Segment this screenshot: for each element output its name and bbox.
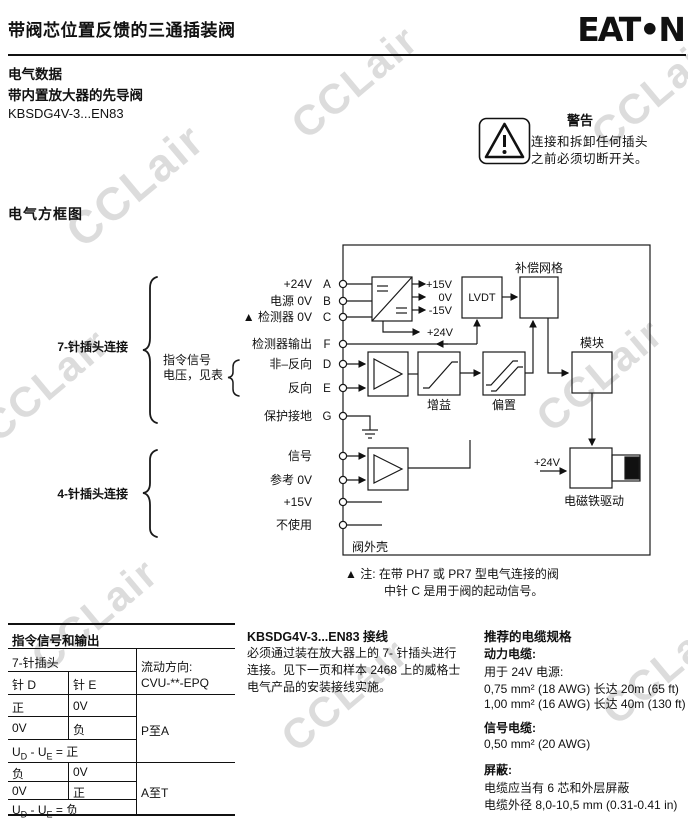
u-signal-negative: UD - UE = 负 [12,801,78,819]
lvdt-label: LVDT [468,292,496,304]
power-supply-block [372,277,412,321]
pin-g-letter: G [323,411,332,423]
pin-15v-label: +15V [284,495,312,509]
brace-4pin [143,450,157,537]
compensation-network-label: 补偿网格 [515,260,563,275]
supply-out-24v: +24V [427,327,454,339]
pin-g-label: 保护接地 [264,408,312,423]
signal-cable-line1: 0,50 mm² (20 AWG) [484,737,590,751]
pin-ref0v-label: 参考 0V [270,472,312,487]
pin-f-letter: F [323,339,330,351]
section-title: 电气方框图 [8,204,83,224]
pin-e-label: 反向 [288,380,312,395]
shield-title: 屏蔽: [484,761,512,778]
solenoid-drive [570,448,640,488]
solenoid-supply-label: +24V [534,457,561,469]
pin-unused-label: 不使用 [276,517,312,532]
diagram-lines [143,245,650,555]
warning-title: 警告 [567,110,593,129]
diagram-note-line2: 中针 C 是用于阀的起动信号。 [384,583,543,598]
model-number: KBSDG4V-3...EN83 [8,106,124,121]
pin-d-letter: D [323,359,331,371]
earth-ground-icon [347,416,378,438]
pin-b-letter: B [323,296,331,308]
row4-pin-e: 0V [73,765,88,779]
u-signal-positive: UD - UE = 正 [12,743,78,761]
pin-c-letter: C [323,312,331,324]
power-cable-sub: 用于 24V 电源: [484,663,563,680]
pin-f-label: 检测器输出 [252,336,312,351]
supply-out-0v: 0V [439,292,453,304]
pin-a-label: +24V [284,277,312,291]
pin-e-letter: E [323,383,331,395]
header-divider [8,54,686,56]
table-title: 指令信号和输出 [12,630,100,649]
supply-out-15v: +15V [426,279,453,291]
eaton-logo: EAT•N [577,10,684,49]
connector7-label: 7-针插头连接 [57,339,128,354]
warning-line2: 之前必须切断开关。 [531,148,648,167]
bias-label: 偏置 [492,397,516,412]
table-subtitle: 7-针插头 [12,654,59,671]
power-cable-line2: 1,00 mm² (16 AWG) 长达 40m (130 ft) [484,695,686,712]
row1-pin-e: 0V [73,699,88,713]
connector4-label: 4-针插头连接 [57,486,128,501]
intro-pilot-valve: 带内置放大器的先导阀 [8,84,143,104]
command-amplifier-box [368,352,408,396]
compensation-network-box [520,277,558,318]
watermark: CCLair [282,16,428,149]
col-header-pin-e: 针 E [73,676,96,693]
datasheet-page: CCLair CCLair CCLair CCLair CCLair CCLai… [0,0,688,833]
row5-pin-d: 0V [12,784,27,798]
row2-pin-d: 0V [12,721,27,735]
pin-signal-label: 信号 [288,449,312,463]
monitor-amplifier-box [368,448,408,490]
flow-direction-model: CVU-**-EPQ [141,676,209,690]
pin-a-letter: A [323,279,331,291]
pin-b-label: 电源 0V [270,294,312,308]
power-cable-title: 动力电缆: [484,645,536,662]
diagram-note-line1: ▲ 注: 在带 PH7 或 PR7 型电气连接的阀 [345,566,559,581]
row2-pin-e: 负 [73,721,85,738]
supply-out-neg15v: -15V [429,305,453,317]
brace-7pin [143,277,157,423]
module-box [572,352,612,393]
electrical-block-diagram: 7-针插头连接 4-针插头连接 指令信号 电压，见表 +24V 电源 0V ▲ … [0,230,688,615]
watermark: CCLair [592,602,688,735]
page-title: 带阀芯位置反馈的三通插装阀 [8,16,236,41]
shield-line1: 电缆应当有 6 芯和外层屏蔽 [484,779,629,796]
solenoid-drive-label: 电磁铁驱动 [564,493,624,508]
row1-pin-d: 正 [12,699,24,716]
pin-d-label: 非–反向 [269,356,312,371]
command-signal-label-2: 电压，见表 [163,368,223,382]
warning-icon [478,117,532,167]
pin-c-label: ▲ 检测器 0V [243,309,312,324]
col-header-pin-d: 针 D [12,676,36,693]
brace-command-signal [228,360,239,396]
valve-housing-label: 阀外壳 [352,540,388,554]
intro-electrical-data: 电气数据 [8,63,62,83]
gain-box [418,352,460,395]
flow-result-1: P至A [141,722,169,739]
command-signal-label-1: 指令信号 [163,352,211,367]
gain-label: 增益 [427,398,451,412]
flow-result-2: A至T [141,784,168,801]
wiring-body: 必须通过装在放大器上的 7- 针插头进行连接。见下一页和样本 2468 上的威格… [247,645,461,697]
module-label: 模块 [580,336,604,350]
bias-box [483,352,525,395]
wiring-title: KBSDG4V-3...EN83 接线 [247,626,388,645]
row4-pin-d: 负 [12,765,24,782]
signal-cable-title: 信号电缆: [484,719,536,736]
cable-title: 推荐的电缆规格 [484,626,572,645]
flow-direction-label: 流动方向: [141,658,192,675]
shield-line2: 电缆外径 8,0-10,5 mm (0.31-0.41 in) [484,796,677,813]
